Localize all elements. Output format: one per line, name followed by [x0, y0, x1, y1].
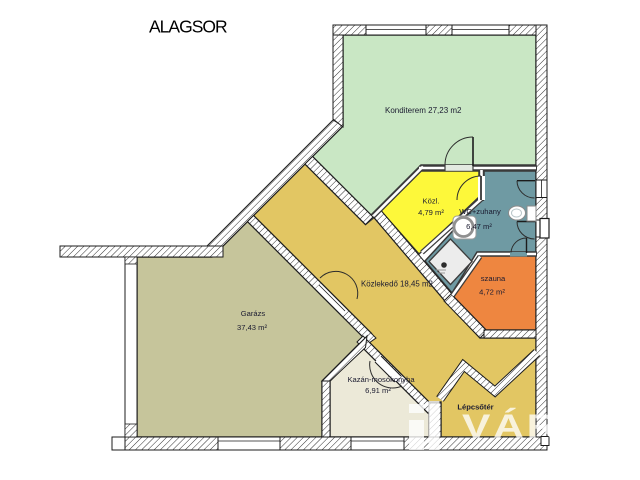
svg-text:37,43 m²: 37,43 m²: [237, 323, 267, 332]
svg-text:ALAGSOR: ALAGSOR: [149, 17, 227, 37]
svg-text:Garázs: Garázs: [241, 309, 266, 318]
svg-text:Kazán-mosókonyha: Kazán-mosókonyha: [347, 375, 415, 384]
svg-text:6,91 m²: 6,91 m²: [365, 386, 391, 395]
svg-text:Közlekedő 18,45 m2: Közlekedő 18,45 m2: [361, 280, 433, 289]
svg-text:4,79 m²: 4,79 m²: [418, 208, 444, 217]
svg-text:Közl.: Közl.: [423, 197, 440, 206]
svg-text:WC+zuhany: WC+zuhany: [459, 207, 501, 216]
svg-text:szauna: szauna: [481, 274, 506, 283]
svg-text:VÁR: VÁR: [462, 407, 560, 445]
svg-text:6,47 m²: 6,47 m²: [466, 222, 492, 231]
svg-text:Konditerem 27,23 m2: Konditerem 27,23 m2: [385, 106, 462, 115]
svg-text:4,72 m²: 4,72 m²: [479, 288, 505, 297]
